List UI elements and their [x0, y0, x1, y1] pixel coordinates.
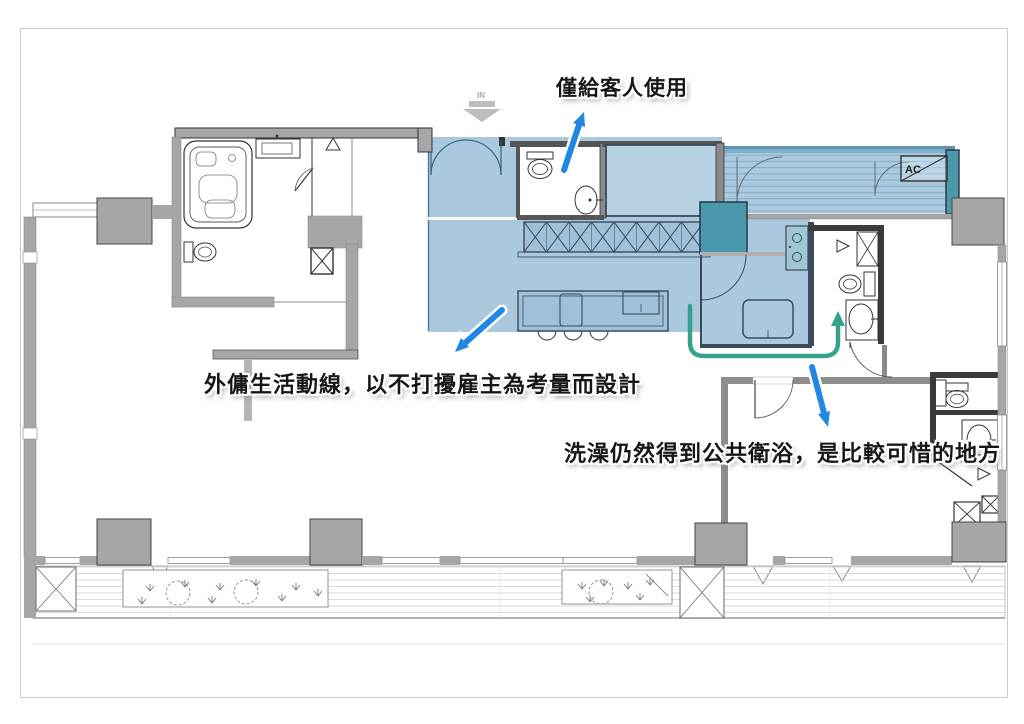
cabinet-icon — [857, 232, 878, 266]
planter-box — [123, 570, 328, 607]
stove-icon — [786, 226, 808, 270]
ac-label: AC — [905, 164, 921, 176]
toilet-icon — [946, 383, 968, 408]
kitchen-island — [518, 291, 668, 340]
annotation-guest-only: 僅給客人使用 — [556, 72, 688, 102]
annotation-public-bath: 洗澡仍然得到公共衛浴，是比較可惜的地方 — [564, 436, 1001, 468]
column-icon — [982, 496, 999, 513]
column-icon — [311, 248, 333, 274]
balcony-deck — [24, 556, 1005, 644]
column-icon — [680, 567, 724, 618]
guest-toilet-room — [510, 141, 606, 220]
bed-icon — [743, 300, 793, 338]
planter-box — [562, 570, 672, 604]
bathtub-icon — [184, 141, 252, 228]
entrance-label: IN — [477, 91, 485, 100]
bar-stools — [538, 331, 608, 340]
door-marker-icon — [978, 468, 990, 480]
door-marker-icon — [326, 138, 340, 150]
entrance-arrow-icon: IN — [463, 91, 501, 122]
toilet-icon — [184, 242, 216, 262]
floorplan-drawing: AC IN — [0, 0, 1024, 724]
door-swing — [295, 168, 313, 191]
right-wall — [998, 245, 1007, 525]
annotation-maid-flow: 外傭生活動線，以不打擾雇主為考量而設計 — [204, 367, 641, 399]
column-icon — [36, 567, 76, 611]
floorplan-canvas: AC IN — [0, 0, 1024, 724]
ac-unit-icon: AC — [901, 156, 947, 181]
arrow-public-bath — [812, 367, 832, 430]
master-bathroom — [172, 128, 432, 356]
